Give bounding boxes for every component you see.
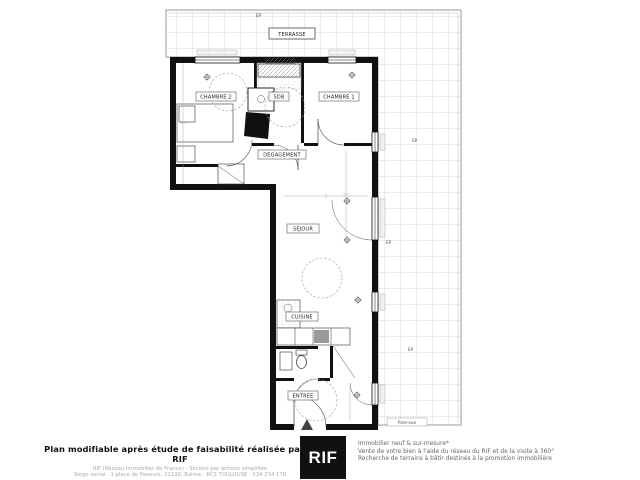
kitchen-counter (277, 328, 350, 345)
kitchen-diagonal (333, 346, 355, 378)
footer-service-3: Recherche de terrains à bâtir destinés à… (358, 456, 628, 464)
bathtub (258, 64, 300, 77)
footer-service-1: Immobilier neuf & sur-mesure* (358, 441, 628, 449)
label-sejour: SEJOUR (293, 227, 313, 233)
washbasin (280, 352, 292, 370)
ep-mark-top: EP (256, 13, 262, 18)
ep-mark-right-3: EP (408, 347, 414, 352)
ep-mark-right-1: EP (412, 138, 418, 143)
door-chambre1 (318, 119, 344, 145)
pare-vue-label: Pare-vue (398, 420, 417, 425)
label-chambre1: CHAMBRE 1 (323, 95, 355, 101)
chambre2-furniture (177, 104, 244, 184)
symbol-marks (203, 71, 361, 398)
ep-mark-right-2: EP (386, 240, 392, 245)
appliance (314, 330, 329, 343)
nightstand (177, 146, 195, 162)
label-cuisine: CUISINE (291, 315, 313, 321)
rif-logo-text: RIF (309, 448, 338, 468)
footer-right-block: Immobilier neuf & sur-mesure* Vente de v… (358, 441, 628, 464)
floor-plan-drawing: TERRASSE Pare-vue EP EP EP EP (0, 0, 640, 480)
label-degagement: DEGAGEMENT (263, 153, 301, 159)
footer-title: Plan modifiable après étude de faisabili… (40, 444, 320, 464)
room-labels: CHAMBRE 2 SDB CHAMBRE 1 DEGAGEMENT SEJOU… (196, 92, 359, 400)
vent-panel (265, 58, 295, 63)
duct-column (244, 112, 270, 139)
window-entree (350, 383, 385, 405)
terrace: TERRASSE Pare-vue EP EP EP EP (166, 10, 461, 426)
footer-left-block: Plan modifiable après étude de faisabili… (40, 444, 320, 479)
pillow (179, 106, 195, 122)
wc-fixtures (280, 350, 307, 370)
toilet (297, 356, 307, 369)
label-entree: ENTREE (293, 394, 314, 400)
footer-address-line: Siège social : 1 place de Paveurs, 31130… (40, 472, 320, 478)
terrace-label: TERRASSE (277, 32, 306, 38)
label-sdb: SDB (273, 95, 284, 101)
door-chambre2 (226, 140, 252, 166)
rif-logo: RIF (300, 436, 346, 479)
floor-plan-page: TERRASSE Pare-vue EP EP EP EP (0, 0, 640, 480)
label-chambre2: CHAMBRE 2 (200, 95, 232, 101)
window-sejour-large (332, 197, 385, 240)
entry-arrow-icon (301, 419, 313, 430)
